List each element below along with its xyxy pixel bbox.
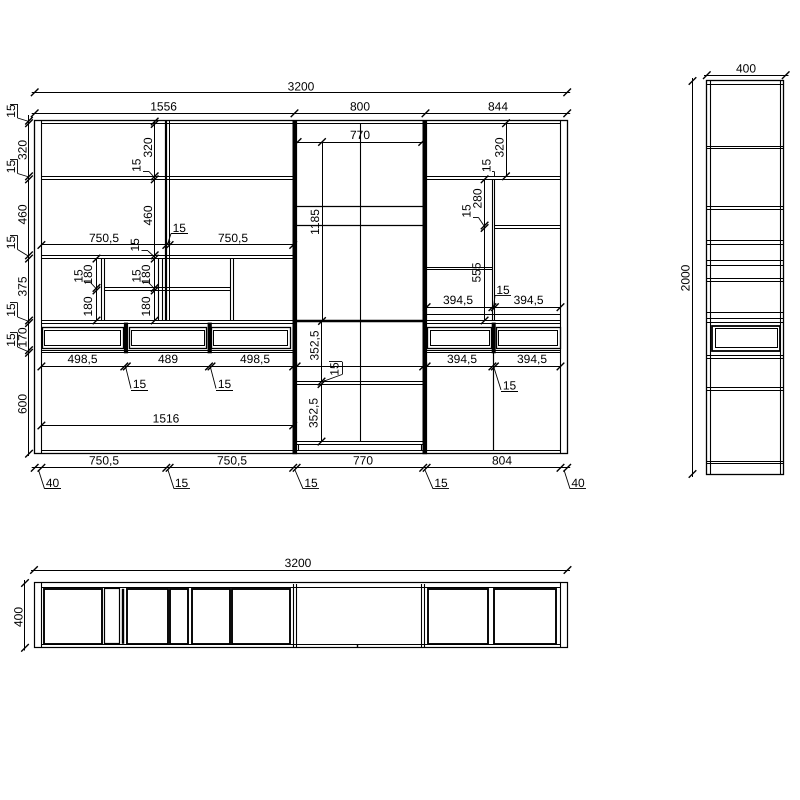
svg-text:1185: 1185	[308, 209, 322, 235]
svg-text:180: 180	[81, 296, 95, 316]
svg-text:750,5: 750,5	[89, 454, 119, 468]
svg-text:750,5: 750,5	[89, 231, 119, 245]
svg-text:15: 15	[133, 377, 147, 391]
svg-text:15: 15	[503, 378, 517, 392]
svg-text:15: 15	[480, 159, 494, 173]
svg-text:489: 489	[158, 352, 178, 366]
svg-text:15: 15	[4, 303, 18, 317]
svg-text:394,5: 394,5	[443, 293, 473, 307]
svg-text:400: 400	[11, 607, 25, 627]
svg-text:180: 180	[139, 296, 153, 316]
svg-text:15: 15	[173, 221, 187, 235]
svg-text:460: 460	[141, 205, 155, 225]
svg-text:320: 320	[493, 137, 507, 157]
svg-text:15: 15	[130, 269, 144, 283]
svg-text:375: 375	[15, 276, 29, 296]
svg-text:15: 15	[304, 476, 318, 490]
svg-text:800: 800	[350, 99, 370, 113]
svg-text:15: 15	[175, 476, 189, 490]
svg-text:15: 15	[4, 333, 18, 347]
svg-text:15: 15	[72, 269, 86, 283]
svg-text:40: 40	[571, 476, 585, 490]
svg-text:15: 15	[496, 283, 510, 297]
svg-text:320: 320	[15, 140, 29, 160]
svg-text:352,5: 352,5	[307, 398, 321, 428]
svg-text:15: 15	[4, 160, 18, 174]
svg-text:770: 770	[350, 128, 370, 142]
svg-text:352,5: 352,5	[308, 330, 322, 360]
svg-text:320: 320	[141, 137, 155, 157]
svg-text:15: 15	[4, 236, 18, 250]
svg-text:394,5: 394,5	[447, 352, 477, 366]
svg-text:750,5: 750,5	[217, 454, 247, 468]
svg-text:3200: 3200	[285, 556, 312, 570]
svg-text:400: 400	[736, 61, 756, 75]
svg-text:2000: 2000	[679, 264, 693, 291]
svg-text:394,5: 394,5	[514, 293, 544, 307]
svg-text:15: 15	[218, 377, 232, 391]
svg-text:40: 40	[46, 476, 60, 490]
svg-text:15: 15	[460, 204, 474, 218]
svg-text:498,5: 498,5	[240, 352, 270, 366]
svg-text:498,5: 498,5	[67, 352, 97, 366]
svg-text:1516: 1516	[153, 411, 180, 425]
svg-text:15: 15	[4, 104, 18, 118]
svg-text:460: 460	[15, 204, 29, 224]
svg-text:804: 804	[492, 454, 512, 468]
svg-text:600: 600	[15, 394, 29, 414]
svg-text:15: 15	[130, 158, 144, 172]
svg-text:750,5: 750,5	[218, 231, 248, 245]
svg-text:555: 555	[470, 262, 484, 282]
svg-text:15: 15	[327, 362, 341, 376]
svg-text:844: 844	[488, 99, 508, 113]
svg-text:15: 15	[434, 476, 448, 490]
svg-text:394,5: 394,5	[517, 352, 547, 366]
svg-text:1556: 1556	[150, 99, 177, 113]
svg-text:3200: 3200	[288, 79, 315, 93]
svg-text:770: 770	[353, 454, 373, 468]
